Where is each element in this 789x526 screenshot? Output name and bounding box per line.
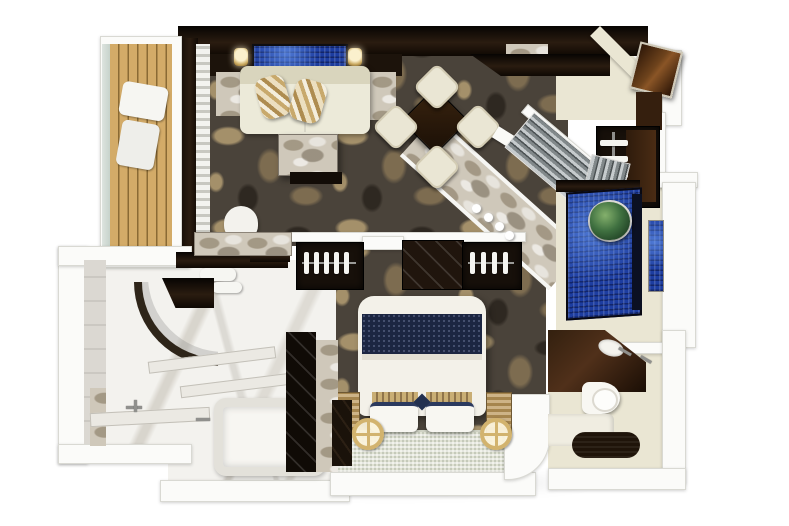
shower-bench-edge xyxy=(632,194,642,310)
bath-faucet xyxy=(196,418,210,421)
shower-right-wall xyxy=(662,182,696,348)
bar-counter-top xyxy=(194,232,292,256)
master-bath-bottom-wall xyxy=(160,480,350,502)
stepping-light-4 xyxy=(505,231,514,240)
clothes-hanger xyxy=(503,252,508,274)
lounge-chair-back xyxy=(118,80,169,121)
clothes-hanger xyxy=(324,252,329,274)
clothes-hanger xyxy=(344,252,349,274)
bath-faucet xyxy=(134,400,137,412)
table-lamp-left xyxy=(234,48,248,66)
clothes-hanger xyxy=(314,252,319,274)
side-table-left xyxy=(216,72,240,116)
clothes-hanger xyxy=(492,252,497,274)
curtains xyxy=(196,44,210,254)
stepping-light-2 xyxy=(484,213,493,222)
coffee-table xyxy=(278,134,338,176)
clothes-hanger xyxy=(470,252,475,274)
entry-upper-cabinet xyxy=(636,92,662,130)
clothes-hanger xyxy=(304,252,309,274)
clothes-hanger xyxy=(334,252,339,274)
suite-floorplan-render xyxy=(0,0,789,526)
stepping-light-1 xyxy=(472,204,481,213)
toilet-bowl xyxy=(592,388,618,412)
clothes-hanger xyxy=(481,252,486,274)
guest-bath-right-wall xyxy=(662,330,686,484)
master-bath-bottom-left-wall xyxy=(58,444,192,464)
ring-lamp-left xyxy=(352,418,384,450)
bath-tall-cabinet xyxy=(286,332,316,472)
potted-plant xyxy=(590,202,630,240)
table-lamp-right xyxy=(348,48,362,66)
bedroom-step-cabinet xyxy=(332,400,352,466)
guest-bath-bottom-wall xyxy=(548,468,686,490)
clothes-hanger xyxy=(600,140,628,146)
walkway-wall-piece xyxy=(362,236,404,250)
stepping-light-3 xyxy=(495,222,504,231)
duvet-fold xyxy=(362,354,482,360)
bed-pillow-right xyxy=(426,402,474,432)
coffee-table-base xyxy=(290,172,342,184)
tv-credenza xyxy=(402,240,464,290)
ring-lamp-right xyxy=(480,418,512,450)
master-bath-top-wall xyxy=(58,246,192,266)
bed-runner xyxy=(362,314,482,354)
dark-bath-mat xyxy=(572,432,640,458)
mosaic-accent-strip xyxy=(648,220,664,292)
top-wall xyxy=(178,26,648,56)
lounge-chair-seat xyxy=(115,119,160,171)
